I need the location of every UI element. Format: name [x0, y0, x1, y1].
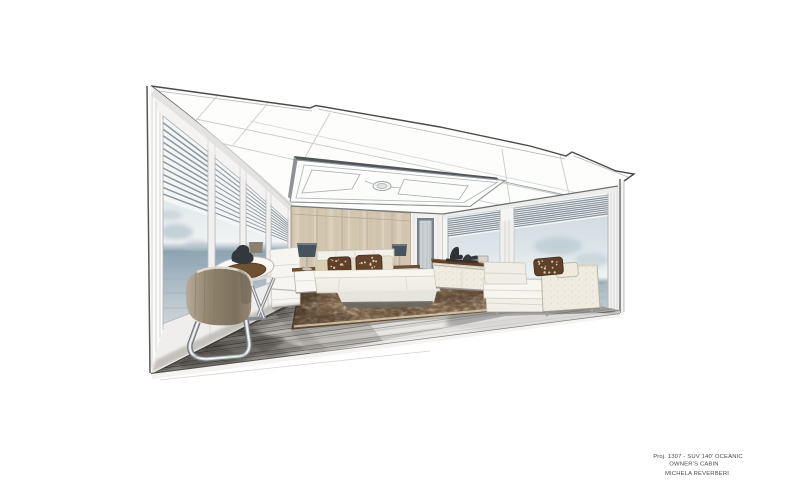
svg-text:Proj. 1307 - SUV 140’ OCEANIC: Proj. 1307 - SUV 140’ OCEANIC [653, 454, 743, 460]
svg-text:OWNER’S CABIN: OWNER’S CABIN [669, 462, 718, 468]
svg-text:MICHELA REVERBERI: MICHELA REVERBERI [665, 471, 729, 477]
